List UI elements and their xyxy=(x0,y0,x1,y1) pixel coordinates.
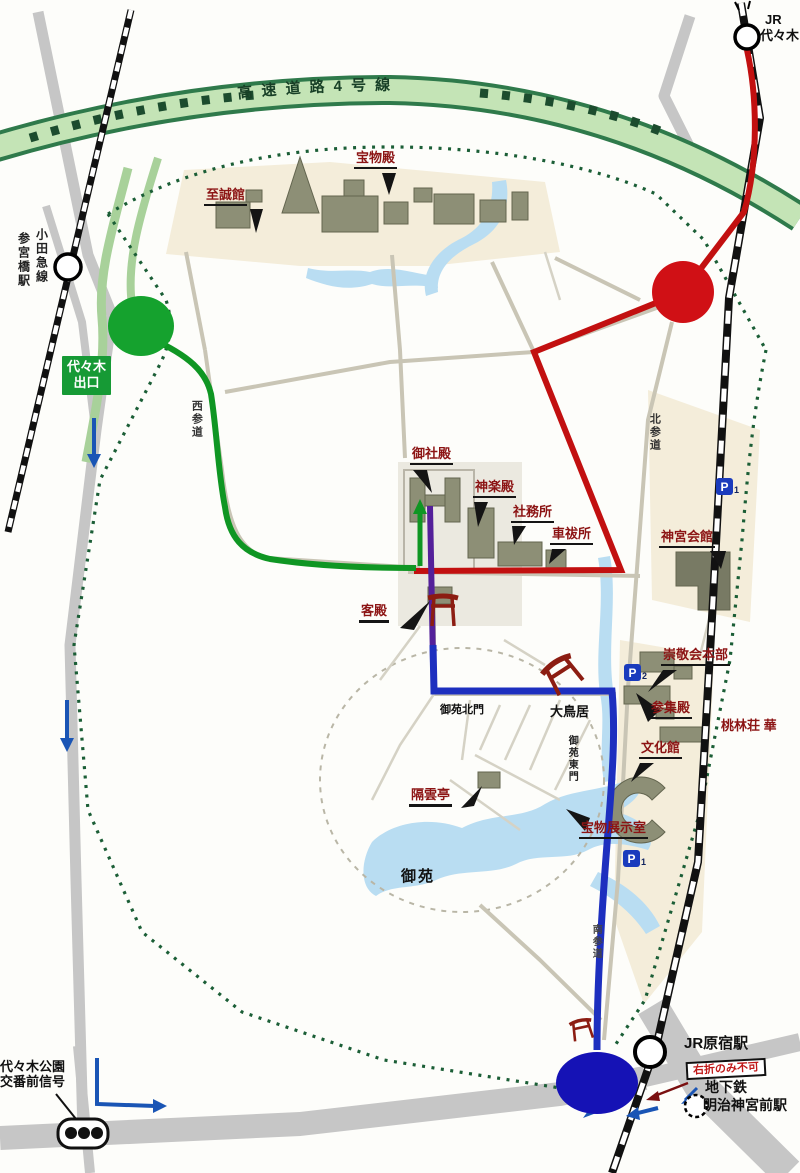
yoyogi-exit-box: 代々木 出口 xyxy=(62,356,111,395)
label-kitasando: 北参道 xyxy=(648,413,660,452)
label-jr-yoyogi-line2: 代々木 xyxy=(760,29,799,44)
parking-icon-p1-bottom: P 1 xyxy=(623,850,646,867)
label-sukeikai-honbu: 崇敬会本部 xyxy=(661,648,730,666)
yoyogi-exit-line1: 代々木 xyxy=(67,359,106,375)
parking-icon-p1-top: P 1 xyxy=(716,478,739,495)
label-kakuuntei: 隔雲亭 xyxy=(409,788,452,807)
route-green xyxy=(150,338,427,568)
label-jr-yoyogi-line1: JR xyxy=(765,13,782,28)
label-kuruma-haraisho: 車祓所 xyxy=(550,527,593,545)
label-jr-harajuku: JR原宿駅 xyxy=(684,1036,748,1053)
label-otorii: 大鳥居 xyxy=(550,705,589,720)
map-canvas: 高速道路4号線 xyxy=(0,0,800,1173)
parking-p-glyph: P xyxy=(623,850,640,867)
label-nishisando: 西参道 xyxy=(190,400,202,439)
label-homotsu-tenjishitsu: 宝物展示室 xyxy=(579,821,648,839)
label-subway: 地下鉄 xyxy=(705,1080,747,1096)
shrine-access-map: 高速道路4号線 xyxy=(0,0,800,1173)
signal-label: 代々木公園 交番前信号 xyxy=(0,1060,65,1089)
label-gyoen-higashimon: 御苑東門 xyxy=(566,735,577,783)
yoyogi-exit-circle xyxy=(108,296,174,356)
label-shiseikan: 至誠館 xyxy=(204,188,247,206)
label-kyakuden: 客殿 xyxy=(359,604,389,623)
jr-yoyogi-station-marker xyxy=(735,1,759,49)
parking-p-glyph: P xyxy=(624,664,641,681)
signal-label-line2: 交番前信号 xyxy=(0,1075,65,1090)
label-odakyu-line: 小田急線 xyxy=(34,228,47,284)
label-meiji-jingumae: 明治神宮前駅 xyxy=(703,1098,787,1114)
parking-p-num: 1 xyxy=(734,485,739,495)
jr-harajuku-station-marker xyxy=(635,1037,665,1067)
label-homotsuden: 宝物殿 xyxy=(354,151,397,169)
route-purple xyxy=(430,506,433,662)
label-kaguraden: 神楽殿 xyxy=(473,480,516,498)
label-sangubashi: 参宮橋駅 xyxy=(16,232,29,288)
traffic-light-icon xyxy=(58,1119,108,1148)
label-shamusho: 社務所 xyxy=(511,505,554,523)
parking-icon-p2: P 2 xyxy=(624,664,647,681)
label-gyoen: 御苑 xyxy=(401,869,435,886)
label-jingu-kaikan: 神宮会館 xyxy=(659,530,715,548)
sangubashi-station-marker xyxy=(55,254,81,280)
parking-p-num: 2 xyxy=(642,671,647,681)
torii-icon-harajuku-gate xyxy=(569,1018,595,1042)
parking-p-glyph: P xyxy=(716,478,733,495)
label-bunkakan: 文化館 xyxy=(639,741,682,759)
label-goshaden: 御社殿 xyxy=(410,447,453,465)
harajuku-junction-circle xyxy=(556,1052,638,1114)
signal-label-line1: 代々木公園 xyxy=(0,1060,65,1075)
red-junction-circle xyxy=(652,261,714,323)
label-minamisando: 南参道 xyxy=(590,924,601,960)
label-sanshuden: 参集殿 xyxy=(649,701,692,719)
label-torinso: 桃林荘 華 xyxy=(719,719,779,735)
yoyogi-exit-line2: 出口 xyxy=(67,375,106,391)
parking-p-num: 1 xyxy=(641,857,646,867)
label-gyoen-kitamon: 御苑北門 xyxy=(440,704,484,716)
